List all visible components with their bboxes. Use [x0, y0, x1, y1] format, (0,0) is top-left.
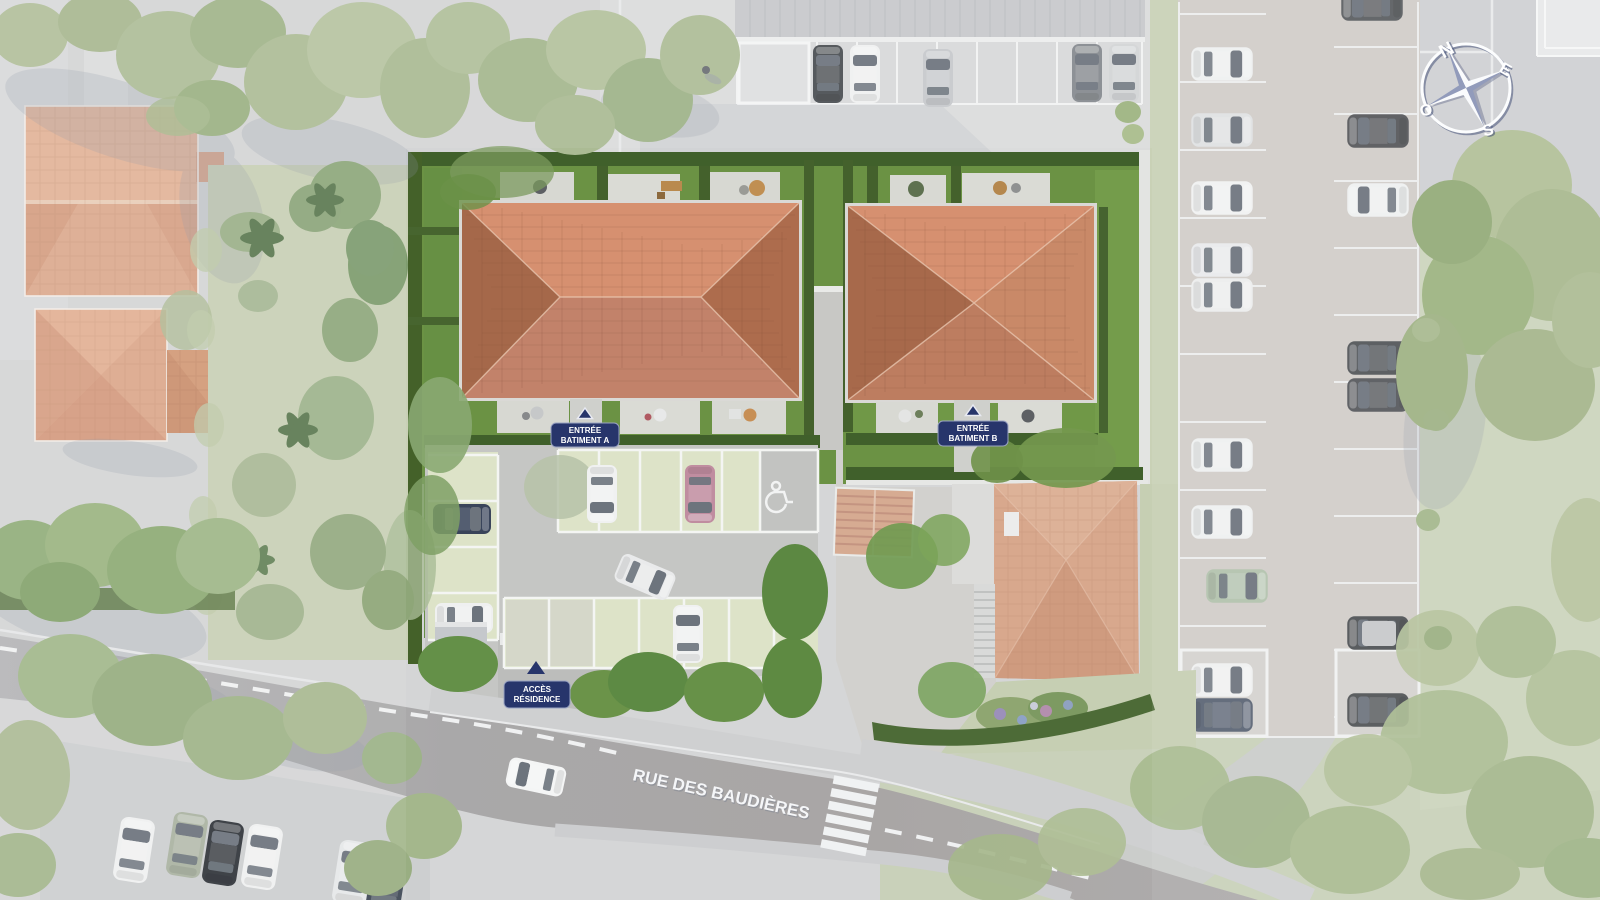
svg-text:ENTRÉE: ENTRÉE — [569, 426, 602, 435]
svg-text:RÉSIDENCE: RÉSIDENCE — [514, 695, 561, 704]
svg-text:ENTRÉE: ENTRÉE — [957, 424, 990, 433]
svg-text:ACCÈS: ACCÈS — [523, 685, 552, 694]
svg-text:BATIMENT B: BATIMENT B — [949, 434, 998, 443]
svg-text:BATIMENT A: BATIMENT A — [561, 436, 610, 445]
